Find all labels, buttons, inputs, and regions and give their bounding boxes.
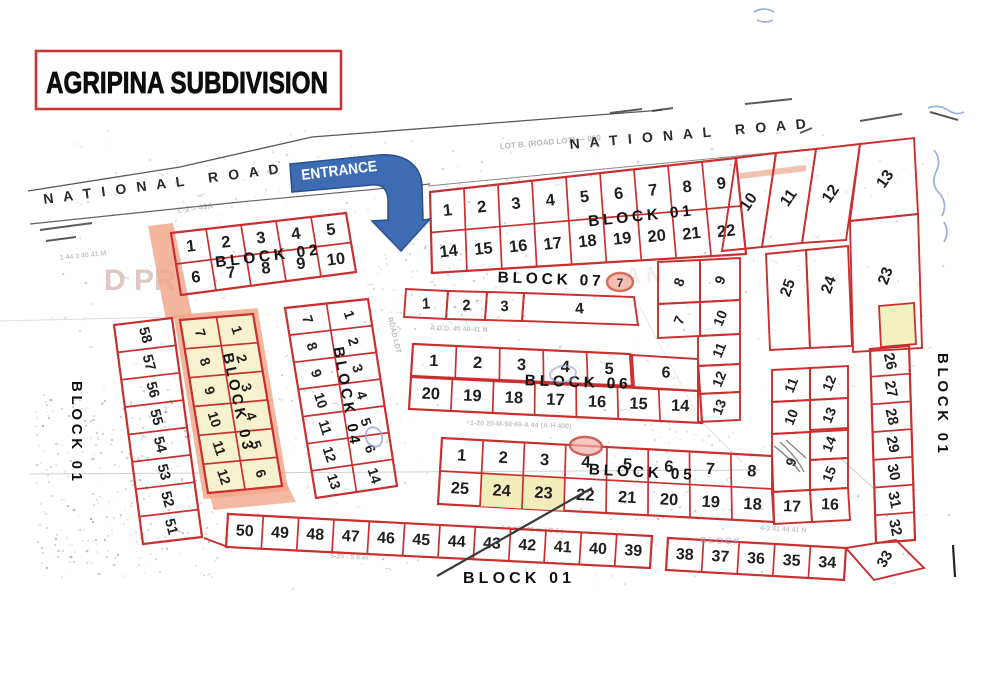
svg-text:18: 18	[577, 231, 597, 251]
svg-text:50: 50	[235, 522, 254, 540]
svg-text:5: 5	[579, 188, 590, 207]
svg-text:44: 44	[447, 533, 466, 551]
svg-text:27: 27	[881, 379, 901, 399]
svg-text:19: 19	[612, 229, 632, 249]
svg-text:34: 34	[818, 554, 837, 572]
svg-text:1: 1	[429, 352, 439, 370]
svg-text:47: 47	[341, 528, 360, 546]
svg-text:41: 41	[553, 539, 572, 557]
svg-text:20: 20	[421, 385, 440, 404]
svg-text:26: 26	[880, 351, 900, 371]
svg-text:8: 8	[747, 462, 757, 480]
svg-text:BLOCK 01: BLOCK 01	[934, 353, 951, 453]
svg-text:BLOCK 01: BLOCK 01	[463, 570, 571, 587]
svg-text:4: 4	[575, 300, 585, 317]
svg-text:29: 29	[882, 435, 902, 455]
svg-text:28: 28	[882, 407, 902, 427]
svg-text:1: 1	[442, 201, 453, 220]
svg-text:19: 19	[701, 493, 720, 512]
svg-text:2: 2	[462, 297, 471, 314]
svg-text:BLOCK: BLOCK	[700, 535, 741, 546]
svg-text:21: 21	[618, 488, 637, 507]
svg-text:15: 15	[629, 395, 648, 414]
svg-text:39: 39	[624, 542, 643, 560]
svg-text:7: 7	[705, 460, 715, 478]
svg-text:3: 3	[511, 194, 522, 213]
svg-text:8: 8	[682, 178, 693, 197]
svg-text:3: 3	[540, 451, 550, 469]
svg-text:21: 21	[681, 224, 701, 244]
svg-text:48: 48	[306, 526, 325, 544]
svg-text:2: 2	[476, 198, 487, 217]
svg-text:2: 2	[498, 449, 508, 467]
svg-text:9: 9	[716, 174, 727, 193]
svg-text:16: 16	[588, 393, 607, 412]
svg-text:14: 14	[439, 242, 460, 262]
svg-text:30: 30	[883, 462, 903, 482]
svg-text:17: 17	[546, 391, 565, 410]
svg-text:1: 1	[421, 295, 430, 312]
svg-text:6: 6	[661, 364, 671, 381]
svg-text:17: 17	[543, 234, 563, 254]
svg-text:18: 18	[743, 495, 762, 514]
svg-text:36: 36	[747, 550, 766, 568]
svg-text:BLOCK 07: BLOCK 07	[497, 269, 601, 290]
svg-text:AGRIPINA SUBDIVISION: AGRIPINA SUBDIVISION	[46, 65, 328, 100]
svg-text:20: 20	[647, 226, 667, 246]
svg-text:7: 7	[617, 276, 624, 290]
svg-text:46: 46	[377, 530, 396, 548]
svg-text:3: 3	[500, 298, 509, 315]
svg-text:18: 18	[504, 389, 523, 408]
svg-text:10: 10	[326, 249, 346, 269]
svg-text:42: 42	[518, 537, 537, 555]
svg-text:38: 38	[675, 546, 694, 564]
svg-text:37: 37	[711, 548, 730, 566]
svg-text:16: 16	[821, 496, 839, 514]
svg-text:1: 1	[457, 446, 467, 464]
svg-text:40: 40	[589, 540, 608, 558]
svg-text:15: 15	[473, 239, 493, 259]
svg-text:2: 2	[473, 354, 483, 372]
svg-text:45: 45	[412, 531, 431, 549]
svg-text:31: 31	[884, 490, 904, 510]
svg-text:35: 35	[782, 552, 801, 570]
svg-text:16: 16	[508, 236, 528, 256]
svg-text:7: 7	[647, 181, 658, 200]
svg-text:49: 49	[271, 524, 290, 542]
svg-text:6: 6	[613, 184, 624, 203]
svg-text:17: 17	[783, 498, 801, 516]
svg-text:32: 32	[885, 518, 905, 538]
svg-text:19: 19	[463, 387, 482, 406]
svg-text:14: 14	[671, 397, 691, 416]
svg-text:24: 24	[492, 481, 512, 500]
svg-text:BLOCK 01: BLOCK 01	[68, 381, 85, 481]
svg-text:20: 20	[659, 490, 678, 509]
svg-text:25: 25	[450, 479, 469, 498]
svg-text:23: 23	[534, 484, 553, 503]
